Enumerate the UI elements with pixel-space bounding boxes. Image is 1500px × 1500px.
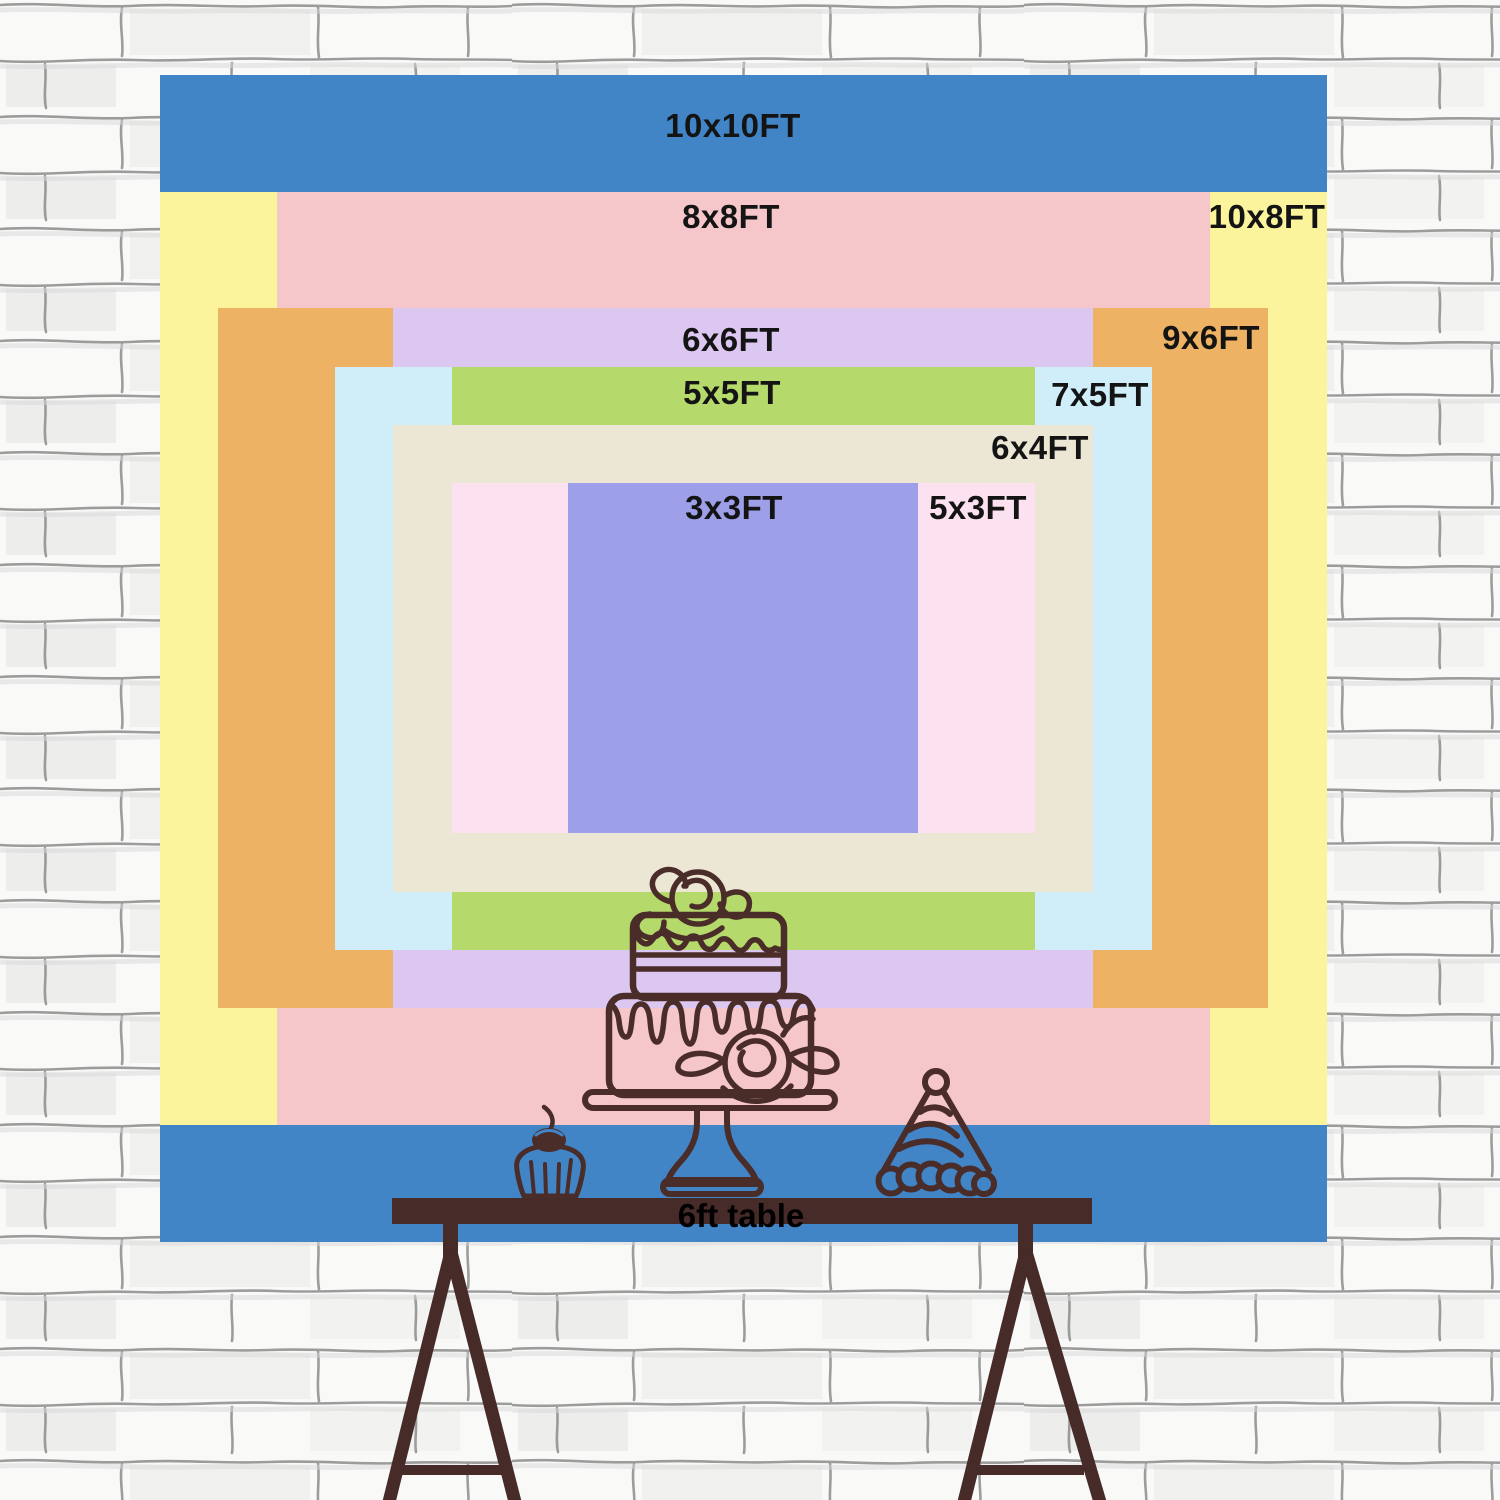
size-label-5x3ft: 5x3FT	[929, 489, 1027, 527]
size-label-6x6ft: 6x6FT	[682, 321, 780, 359]
size-label-7x5ft: 7x5FT	[1051, 376, 1149, 414]
size-label-8x8ft: 8x8FT	[682, 198, 780, 236]
size-label-3x3ft: 3x3FT	[685, 489, 783, 527]
size-label-10x10ft: 10x10FT	[665, 107, 801, 145]
size-layer-3x3ft	[568, 483, 918, 833]
size-label-9x6ft: 9x6FT	[1162, 319, 1260, 357]
size-label-10x8ft: 10x8FT	[1209, 198, 1326, 236]
size-label-5x5ft: 5x5FT	[683, 374, 781, 412]
table-size-label: 6ft table	[678, 1197, 805, 1235]
backdrop-panel: 10x10FT 10x8FT 8x8FT 9x6FT 6x6FT 7x5FT 5…	[160, 75, 1327, 1242]
size-label-6x4ft: 6x4FT	[991, 429, 1089, 467]
backdrop-size-chart: 10x10FT 10x8FT 8x8FT 9x6FT 6x6FT 7x5FT 5…	[0, 0, 1500, 1500]
